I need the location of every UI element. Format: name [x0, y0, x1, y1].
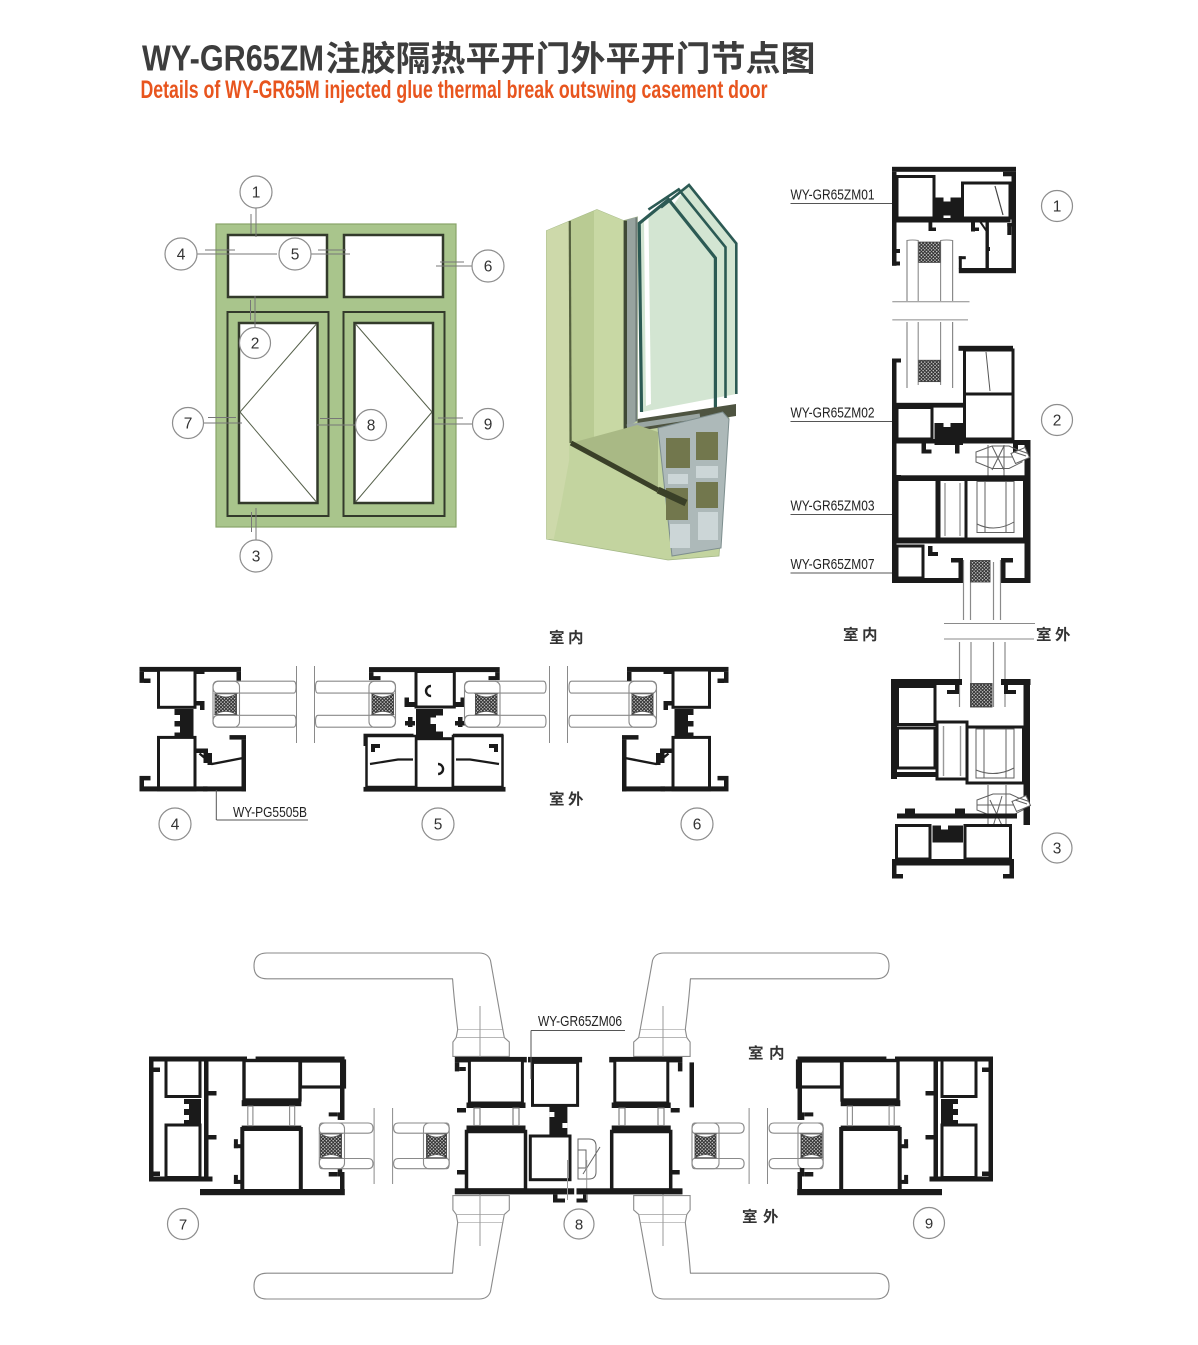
svg-text:WY-GR65ZM01: WY-GR65ZM01: [791, 187, 875, 204]
svg-text:1: 1: [252, 185, 261, 202]
svg-text:8: 8: [575, 1216, 583, 1233]
svg-text:9: 9: [484, 417, 493, 434]
svg-text:9: 9: [925, 1215, 933, 1232]
svg-text:6: 6: [693, 817, 702, 834]
svg-text:2: 2: [1053, 413, 1062, 430]
svg-text:7: 7: [184, 416, 193, 433]
svg-text:3: 3: [1053, 841, 1062, 858]
svg-text:WY-GR65ZM: WY-GR65ZM: [142, 38, 324, 79]
svg-text:1: 1: [1053, 199, 1062, 216]
svg-text:8: 8: [367, 418, 376, 435]
svg-text:4: 4: [171, 817, 180, 834]
svg-text:WY-GR65ZM03: WY-GR65ZM03: [791, 498, 875, 515]
svg-text:4: 4: [177, 247, 186, 264]
svg-text:WY-GR65ZM07: WY-GR65ZM07: [791, 556, 875, 573]
svg-text:7: 7: [179, 1216, 187, 1233]
svg-text:6: 6: [484, 259, 493, 276]
svg-text:2: 2: [251, 336, 260, 353]
svg-text:3: 3: [252, 549, 261, 566]
svg-text:5: 5: [291, 247, 300, 264]
svg-text:WY-GR65ZM06: WY-GR65ZM06: [538, 1013, 622, 1030]
svg-text:WY-PG5505B: WY-PG5505B: [233, 805, 307, 821]
svg-text:WY-GR65ZM02: WY-GR65ZM02: [791, 405, 875, 422]
svg-text:5: 5: [434, 817, 443, 834]
svg-text:Details of WY-GR65M injected g: Details of WY-GR65M injected glue therma…: [141, 76, 768, 104]
